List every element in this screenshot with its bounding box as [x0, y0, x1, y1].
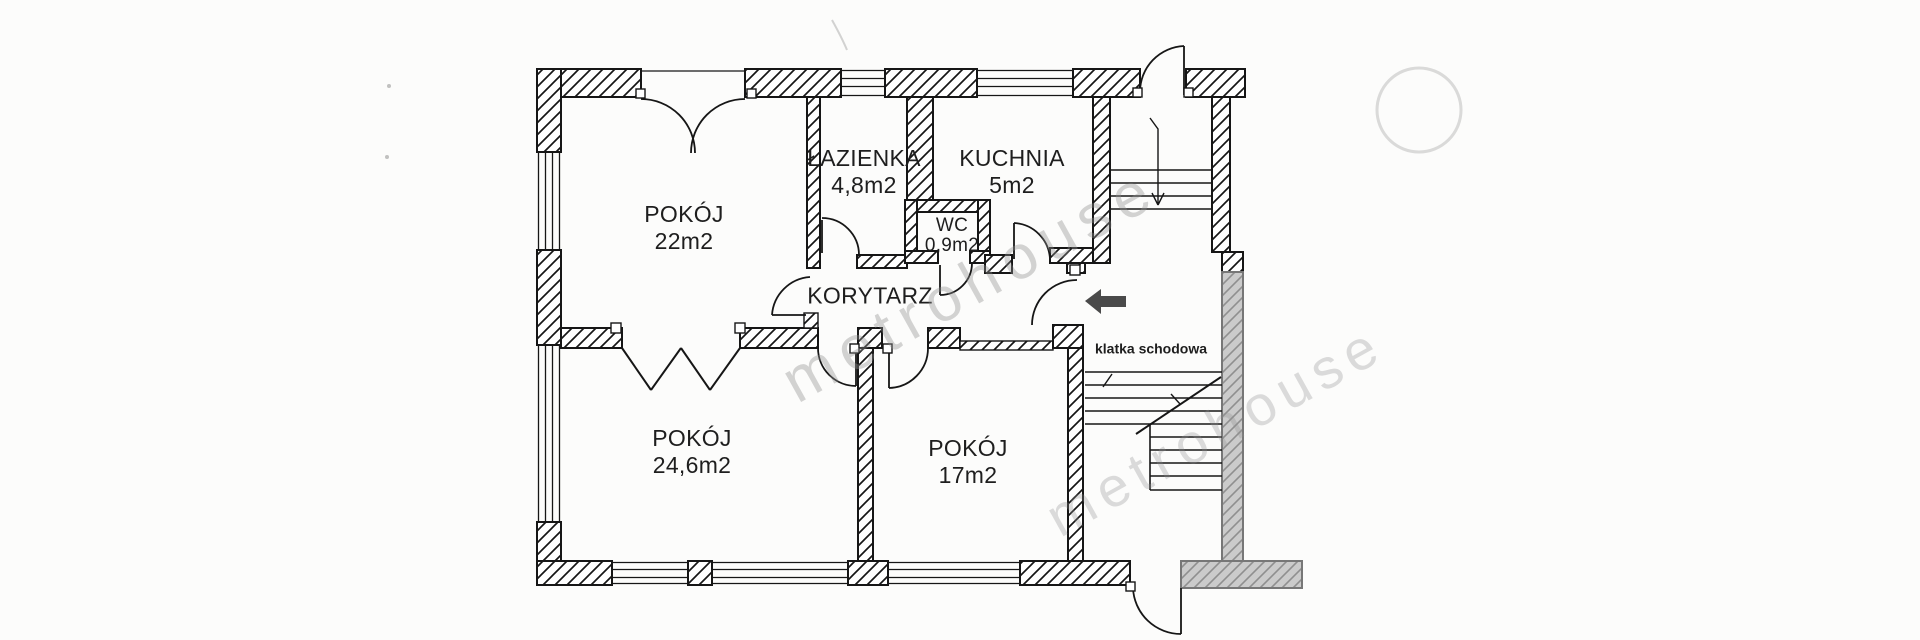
wall: [1073, 69, 1140, 97]
wall-thin: [960, 341, 1053, 350]
window: [888, 561, 1020, 585]
window: [537, 345, 561, 522]
room-area: 17m2: [928, 462, 1007, 489]
room-area: 0,9m2: [925, 236, 979, 256]
window: [841, 69, 885, 97]
room-area: 5m2: [959, 172, 1065, 199]
wall-kuchnia-bottom: [1050, 248, 1093, 263]
wall: [745, 69, 841, 97]
wall: [848, 561, 888, 585]
room-label-pokoj-246: POKÓJ 24,6m2: [652, 425, 731, 479]
door-arc: [1014, 223, 1050, 259]
door-arc: [1140, 46, 1184, 92]
watermark-circle: [1377, 68, 1461, 152]
door-arc: [940, 263, 972, 295]
door-arc: [1133, 588, 1181, 634]
wall: [1186, 69, 1245, 97]
floorplan-page: POKÓJ 22m2 ŁAZIENKA 4,8m2 KUCHNIA 5m2 WC…: [0, 0, 1920, 640]
room-name: KUCHNIA: [959, 145, 1065, 172]
door-arc: [641, 99, 695, 153]
room-area: 24,6m2: [652, 452, 731, 479]
door-arc: [1032, 280, 1077, 325]
wall-shaft-right: [1212, 97, 1230, 252]
window: [612, 561, 688, 585]
window: [537, 152, 561, 250]
wall: [740, 328, 818, 348]
gray-walls-layer: [1181, 272, 1302, 588]
stair-treads-lower-right: [1150, 424, 1222, 490]
stair-direction-line: [1150, 118, 1164, 205]
scan-curve: [832, 20, 847, 50]
wall-korytarz-top: [985, 255, 1012, 273]
wall: [537, 69, 561, 152]
door-arc: [889, 348, 928, 388]
window: [712, 561, 848, 585]
stair-railing-tick: [1171, 394, 1180, 404]
door-arc: [772, 277, 810, 315]
room-label-lazienka: ŁAZIENKA 4,8m2: [807, 145, 921, 199]
room-name: KORYTARZ: [807, 283, 933, 310]
floorplan-drawing: [0, 0, 1920, 640]
room-label-pokoj-17: POKÓJ 17m2: [928, 435, 1007, 489]
wall-divider-246-17: [858, 348, 873, 561]
room-name: POKÓJ: [928, 435, 1007, 462]
room-area: 22m2: [644, 228, 723, 255]
room-label-korytarz: KORYTARZ: [807, 283, 933, 310]
room-name: POKÓJ: [644, 201, 723, 228]
wall: [928, 328, 960, 348]
room-name: POKÓJ: [652, 425, 731, 452]
room-area: 4,8m2: [807, 172, 921, 199]
room-label-pokoj-22: POKÓJ 22m2: [644, 201, 723, 255]
stair-treads-upper: [1110, 170, 1212, 209]
room-name: ŁAZIENKA: [807, 145, 921, 172]
room-label-wc: WC 0,9m2: [925, 216, 979, 256]
wall-lazienka-bottom: [857, 255, 907, 268]
entry-arrow-icon: [1085, 289, 1126, 314]
wall-kuchnia-right: [1093, 97, 1110, 263]
french-door-leaves: [622, 348, 740, 390]
wall: [885, 69, 977, 97]
door-arc: [818, 348, 856, 386]
wall: [804, 313, 818, 328]
wall: [858, 328, 882, 348]
door-arc: [822, 218, 859, 255]
room-name: WC: [925, 216, 979, 236]
wall: [537, 250, 561, 345]
gray-wall-right: [1222, 272, 1243, 561]
door-arc: [691, 99, 745, 153]
gray-wall-bottom: [1181, 561, 1302, 588]
wall: [537, 561, 612, 585]
wall: [1020, 561, 1130, 585]
wall-shaft-right-foot: [1222, 252, 1243, 272]
wall: [688, 561, 712, 585]
room-label-kuchnia: KUCHNIA 5m2: [959, 145, 1065, 199]
window: [977, 69, 1073, 97]
wall-divider-17-stairs: [1068, 348, 1083, 561]
wall: [1053, 325, 1083, 348]
staircase-label: klatka schodowa: [1095, 342, 1207, 357]
stair-treads-lower: [1085, 372, 1222, 424]
